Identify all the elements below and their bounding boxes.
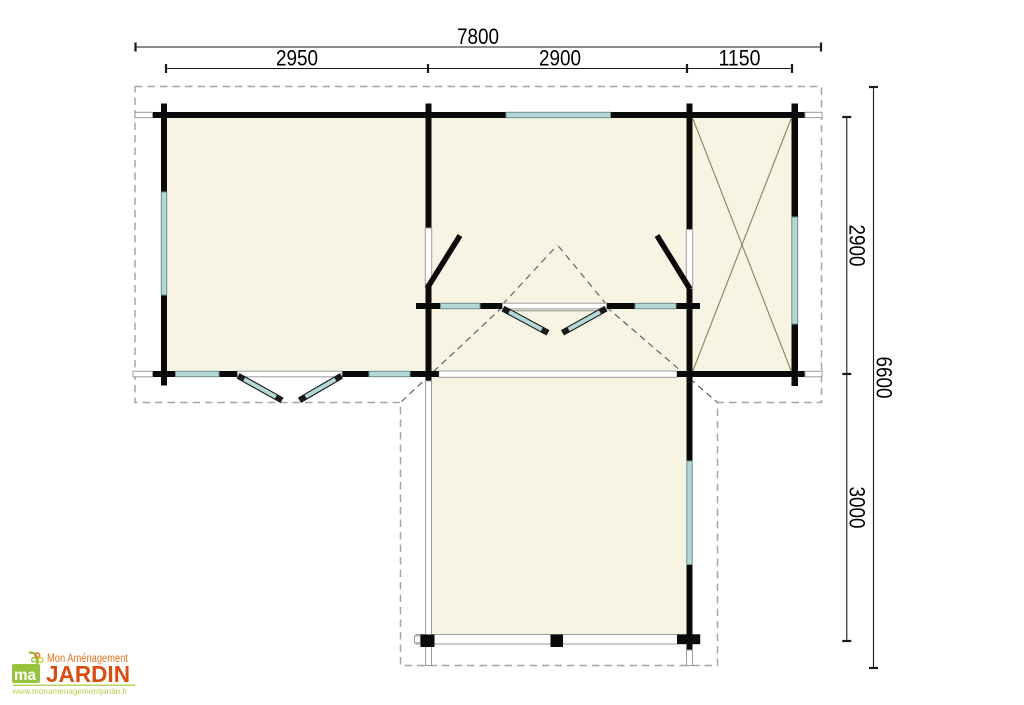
svg-text:JARDIN: JARDIN [46,661,130,687]
svg-text:2900: 2900 [845,225,870,267]
svg-text:ma: ma [14,667,36,684]
svg-text:2950: 2950 [276,46,318,71]
svg-text:7800: 7800 [457,24,499,49]
svg-text:6600: 6600 [872,357,897,399]
svg-text:3000: 3000 [845,487,870,529]
svg-text:2900: 2900 [539,46,581,71]
svg-text:1150: 1150 [719,46,761,71]
svg-text:www.monamenagementjardin.fr: www.monamenagementjardin.fr [12,686,128,696]
